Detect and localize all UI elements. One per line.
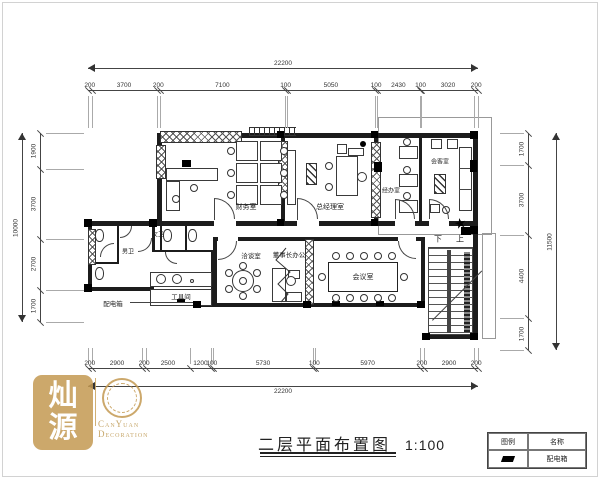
dimension-label: 100	[206, 360, 217, 367]
dimension-label: 200	[416, 360, 427, 367]
witness-line	[46, 239, 84, 240]
chair	[190, 184, 198, 192]
wall	[185, 226, 187, 250]
witness-line	[88, 96, 89, 128]
witness-line	[160, 96, 161, 128]
wall	[473, 226, 478, 339]
column	[371, 219, 378, 226]
logo-square-seal: 灿 源	[33, 375, 93, 450]
dimension-label: 3700	[31, 197, 38, 211]
logo-divider	[95, 378, 96, 426]
legend-symbol-cell	[488, 450, 528, 468]
dimension-label: 5730	[256, 360, 270, 367]
furniture-desk	[447, 139, 458, 149]
column	[417, 301, 425, 308]
cabinet-striped	[306, 163, 317, 185]
chair	[227, 169, 235, 177]
dimension-label: 200	[471, 82, 482, 89]
chair	[403, 138, 411, 146]
north-star-icon: ★	[453, 215, 468, 231]
door-arc	[165, 252, 177, 264]
room-label-conference: 会议室	[353, 272, 374, 282]
chair	[253, 285, 261, 293]
dimension-label: 1700	[519, 327, 526, 341]
stair-handrail	[464, 252, 470, 332]
column	[470, 131, 478, 139]
witness-line	[157, 96, 158, 128]
furniture-desk	[236, 163, 258, 183]
furniture-desk	[287, 150, 296, 205]
title-underline-thick	[260, 452, 396, 454]
black-dot	[360, 141, 366, 147]
dimension-arrow	[471, 64, 478, 72]
dimension-label: 3020	[441, 82, 455, 89]
wall	[421, 237, 425, 307]
dimension-total: 22200	[274, 388, 292, 395]
company-logo: 灿 源 CanYuan Decoration	[28, 366, 178, 471]
distribution-box-label: 配电箱	[103, 298, 123, 308]
chair	[403, 192, 411, 200]
chair	[346, 294, 354, 302]
chair	[318, 273, 326, 281]
dimension-total: 22200	[274, 60, 292, 67]
chair	[357, 172, 367, 182]
room-label-tool-room: 工具间	[171, 291, 191, 301]
wall	[213, 237, 217, 307]
furniture-desk	[260, 141, 282, 161]
furniture-desk	[260, 185, 282, 205]
column	[303, 301, 311, 308]
logo-seal-char2: 源	[48, 413, 77, 444]
chair	[227, 147, 235, 155]
column	[149, 219, 157, 227]
dimension-arrow	[88, 64, 95, 72]
wall	[419, 138, 422, 221]
door-arc	[138, 238, 152, 252]
window-hatch	[305, 239, 314, 305]
window-hatch	[160, 131, 242, 143]
dimension-label: 2700	[31, 257, 38, 271]
dimension-line	[88, 68, 478, 69]
witness-line	[500, 235, 524, 236]
witness-line	[478, 96, 479, 128]
equipment-block	[182, 160, 191, 167]
door-opening	[297, 220, 319, 227]
column	[193, 301, 201, 308]
witness-line	[92, 96, 93, 128]
door-opening	[214, 220, 236, 227]
logo-brand-text: CanYuan Decoration	[98, 419, 149, 440]
wall	[473, 133, 478, 226]
chair	[225, 285, 233, 293]
dimension-label: 2900	[442, 360, 456, 367]
wall	[213, 237, 421, 241]
door-arc	[218, 241, 237, 260]
chair	[253, 269, 261, 277]
witness-line	[46, 133, 84, 134]
door-arc	[297, 198, 318, 219]
chair	[325, 162, 333, 170]
furniture-desk	[166, 168, 218, 181]
legend-item-name: 配电箱	[528, 450, 586, 468]
furniture-desk	[337, 144, 347, 154]
logo-brand-line2: Decoration	[98, 429, 149, 439]
chair	[374, 294, 382, 302]
witness-line	[421, 96, 422, 128]
equipment-block	[374, 162, 382, 172]
chair	[172, 274, 182, 284]
toilet-fixture	[163, 229, 172, 242]
dimension-label: 100	[309, 360, 320, 367]
column	[277, 131, 284, 138]
dimension-label: 1700	[519, 142, 526, 156]
dimension-label: 200	[153, 82, 164, 89]
line	[459, 189, 472, 190]
legend-header-name: 名称	[528, 433, 586, 450]
witness-line	[46, 290, 84, 291]
chair	[190, 279, 194, 283]
wall	[117, 226, 119, 264]
dimension-label: 100	[280, 82, 291, 89]
room-label-finance: 财务室	[236, 202, 257, 212]
chair	[280, 191, 288, 199]
room-label-negotiation: 洽谈室	[241, 250, 261, 260]
chair	[325, 183, 333, 191]
witness-line	[46, 169, 84, 170]
column	[84, 284, 92, 292]
witness-line	[46, 322, 84, 323]
column	[84, 219, 92, 227]
dimension-label: 11500	[547, 233, 554, 251]
room-label-general-manager: 总经理室	[316, 202, 344, 212]
witness-line	[500, 133, 524, 134]
chair	[225, 269, 233, 277]
logo-seal-char1: 灿	[48, 381, 77, 412]
dimension-arrow	[552, 133, 560, 140]
door-arc	[100, 243, 114, 257]
chair	[239, 292, 247, 300]
dimension-line	[40, 133, 41, 322]
dimension-label: 200	[84, 82, 95, 89]
column	[277, 219, 284, 226]
cabinet-striped	[434, 174, 446, 194]
dimension-label: 10000	[13, 218, 20, 236]
witness-line	[500, 350, 524, 351]
distribution-box-symbol-icon	[501, 456, 515, 462]
furniture-desk	[399, 174, 418, 187]
window-hatch	[156, 145, 166, 179]
chair	[400, 273, 408, 281]
dimension-label: 1700	[31, 299, 38, 313]
dimension-label: 200	[471, 360, 482, 367]
chair	[280, 169, 288, 177]
chair	[346, 252, 354, 260]
chair	[156, 274, 166, 284]
furniture-desk	[348, 148, 364, 156]
column	[371, 131, 378, 138]
column	[470, 333, 478, 340]
dimension-arrow	[471, 382, 478, 390]
window-strip	[249, 127, 296, 136]
dimension-line	[556, 133, 557, 350]
dimension-label: 100	[415, 82, 426, 89]
door-arc	[214, 198, 235, 219]
dimension-label: 2430	[391, 82, 405, 89]
chair	[332, 252, 340, 260]
room-label-staff-office: 经办室	[382, 186, 400, 195]
witness-line	[190, 348, 191, 364]
dimension-label: 3700	[117, 82, 131, 89]
chair	[374, 252, 382, 260]
dimension-arrow	[552, 343, 560, 350]
floor-plan-drawing: 财务室 总经理室 经办室 会客室 女卫 男卫 工具间 洽谈室 董事长办公 会议室…	[0, 0, 600, 479]
dimension-label: 5970	[360, 360, 374, 367]
drawing-scale: 1:100	[405, 437, 445, 453]
furniture-desk	[236, 141, 258, 161]
room-label-womens-wc: 女卫	[152, 230, 164, 239]
chair	[239, 277, 247, 285]
toilet-fixture	[95, 229, 104, 242]
witness-line	[474, 96, 475, 128]
wall	[88, 287, 154, 291]
dimension-label: 100	[371, 82, 382, 89]
stair-up-label: 上	[456, 234, 464, 245]
door-opening	[429, 220, 449, 227]
dimension-label: 3700	[519, 193, 526, 207]
dimension-label: 7100	[215, 82, 229, 89]
wall	[152, 250, 213, 252]
room-label-reception: 会客室	[431, 157, 449, 166]
dimension-arrow	[18, 315, 26, 322]
column	[422, 333, 430, 340]
room-label-chairman-office: 董事长办公	[273, 249, 306, 259]
dimension-arrow	[18, 133, 26, 140]
door-arc	[398, 241, 416, 259]
chair	[172, 195, 180, 203]
dimension-line	[22, 133, 23, 322]
logo-brand-line1: CanYuan	[98, 419, 149, 429]
chair	[388, 252, 396, 260]
furniture-desk	[399, 146, 418, 159]
line	[130, 302, 194, 303]
dimension-label: 4400	[519, 269, 526, 283]
chair	[227, 191, 235, 199]
furniture-desk	[336, 156, 358, 196]
title-underline-thin	[260, 456, 396, 457]
chair	[360, 294, 368, 302]
chair	[332, 294, 340, 302]
door-opening	[395, 220, 415, 227]
door-arc	[120, 226, 132, 238]
balcony-outline	[482, 233, 496, 339]
chair	[280, 147, 288, 155]
chair	[403, 166, 411, 174]
chair	[239, 262, 247, 270]
column	[470, 226, 478, 234]
witness-line	[287, 96, 288, 128]
witness-line	[500, 165, 524, 166]
toilet-fixture	[188, 229, 197, 242]
room-label-mens-wc: 男卫	[122, 247, 134, 256]
furniture-desk	[260, 163, 282, 183]
witness-line	[377, 96, 378, 128]
furniture-desk	[431, 139, 442, 149]
window-hatch	[371, 142, 381, 218]
furniture-desk	[459, 147, 472, 211]
logo-round-seal-inner	[107, 383, 137, 413]
toilet-fixture	[95, 267, 104, 280]
logo-round-seal	[102, 378, 142, 418]
stair-down-label: 下	[434, 234, 442, 245]
witness-line	[500, 318, 524, 319]
chair	[388, 294, 396, 302]
dimension-label: 1900	[31, 144, 38, 158]
dimension-label: 5050	[324, 82, 338, 89]
chair	[360, 252, 368, 260]
stair-rail	[447, 250, 451, 333]
legend-table: 图例 名称 配电箱	[487, 432, 587, 469]
legend-header-symbol: 图例	[488, 433, 528, 450]
column	[470, 160, 477, 172]
